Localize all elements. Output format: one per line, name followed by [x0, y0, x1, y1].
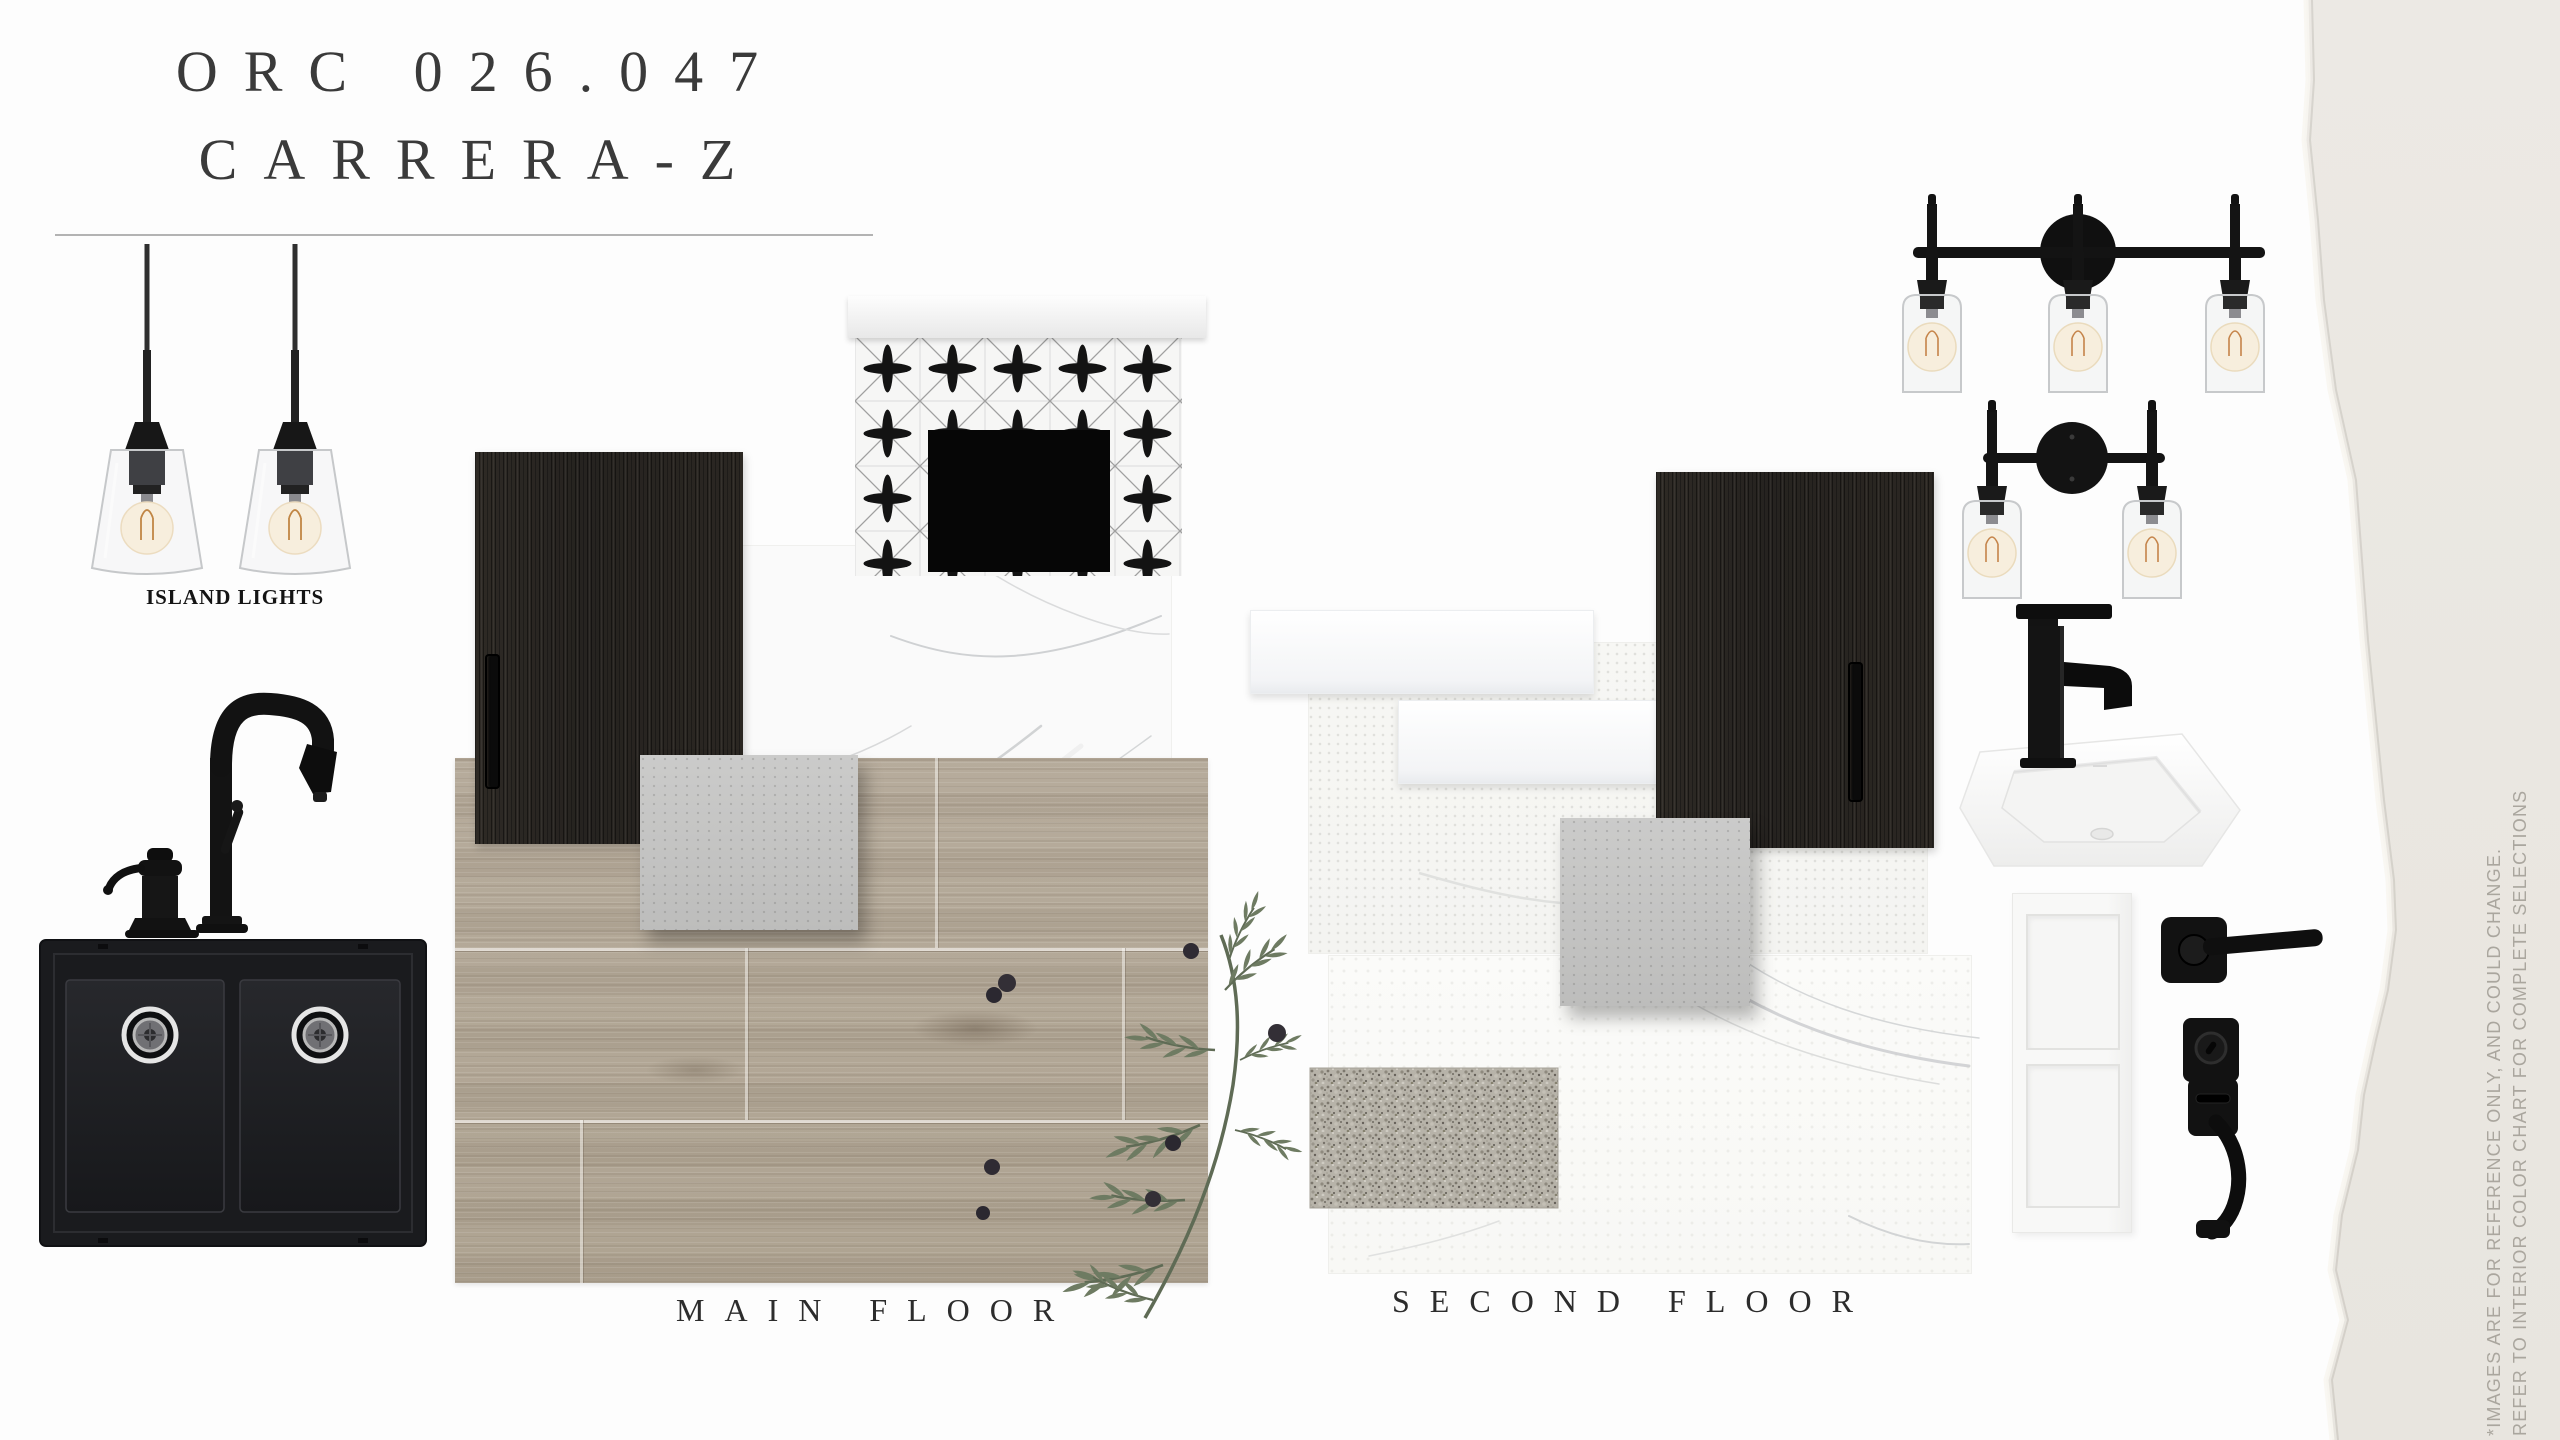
faucet-sprayer — [299, 744, 337, 794]
fireplace-sample — [848, 296, 1206, 580]
olives — [976, 943, 1286, 1220]
board-title-line1: ORC 026.047 — [130, 38, 830, 105]
faucet-handle — [2016, 604, 2112, 619]
door-panel-bottom — [2026, 1064, 2120, 1208]
kitchen-faucet-image — [85, 680, 370, 945]
faucet-spout — [2064, 662, 2132, 710]
cabinet-handle — [1848, 662, 1863, 802]
island-lights-label: ISLAND LIGHTS — [146, 585, 324, 610]
sink-drain-right — [294, 1009, 346, 1061]
island-pendant-lights-image — [80, 238, 380, 608]
sink-overflow — [2091, 829, 2113, 840]
vanity-light-3-bulb — [1895, 185, 2305, 400]
soap-dispenser — [103, 848, 199, 938]
subway-tile-sample-1 — [1250, 610, 1594, 694]
gray-tile-sample-second — [1560, 818, 1750, 1006]
design-board: ORC 026.047 CARRERA-Z — [0, 0, 2560, 1440]
cabinet-door-sample-second — [1656, 472, 1934, 848]
second-floor-label: SECOND FLOOR — [1392, 1283, 1873, 1320]
firebox-opening — [928, 430, 1110, 572]
vanity-light-2-bulb — [1955, 400, 2215, 605]
board-title-line2: CARRERA-Z — [130, 126, 830, 193]
interior-door-sample — [2012, 893, 2132, 1233]
cabinet-handle — [485, 654, 500, 789]
mantel-shelf — [848, 296, 1206, 338]
kitchen-sink-image — [38, 938, 428, 1250]
granite-sample — [1310, 1068, 1558, 1208]
plank-joint — [580, 1120, 583, 1283]
deadbolt-thumbturn — [2178, 1015, 2248, 1085]
entry-handleset — [2180, 1078, 2250, 1238]
plank-joint — [745, 948, 748, 1120]
pendant-light-right — [240, 244, 350, 574]
gray-tile-sample-main — [640, 755, 858, 930]
sink-drain-left — [124, 1009, 176, 1061]
door-panel-top — [2026, 914, 2120, 1050]
bathroom-faucet-image — [2010, 600, 2150, 772]
disclaimer-line2: REFER TO INTERIOR COLOR CHART FOR COMPLE… — [2510, 790, 2531, 1436]
olive-branch-decoration — [895, 900, 1310, 1320]
pendant-light-left — [92, 244, 202, 574]
main-floor-label: MAIN FLOOR — [676, 1292, 1074, 1329]
disclaimer-line1: *IMAGES ARE FOR REFERENCE ONLY, AND COUL… — [2484, 848, 2505, 1436]
title-divider — [55, 234, 873, 236]
